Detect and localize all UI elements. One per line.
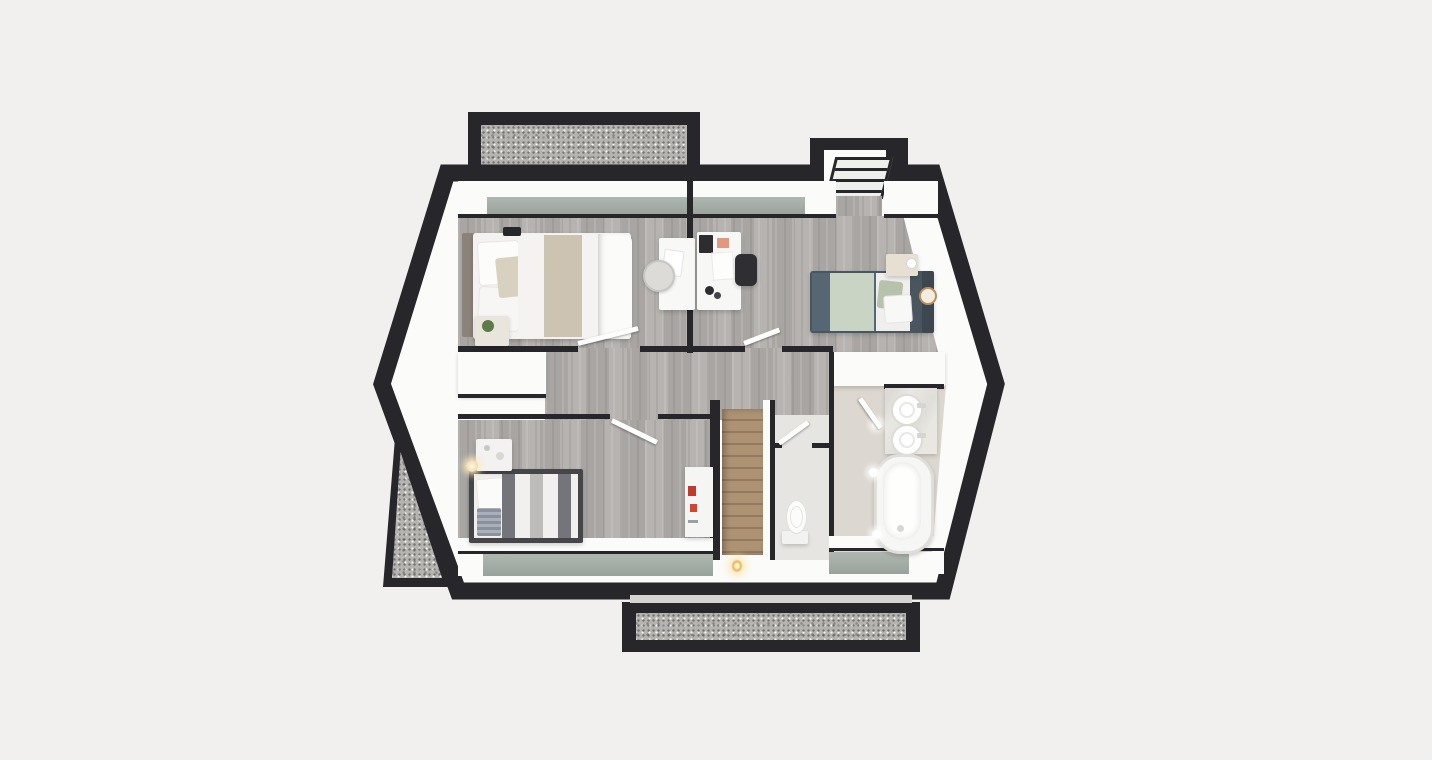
plant: [482, 320, 494, 332]
wall-wc-top-b: [812, 443, 829, 448]
bottom-wall-corner-right: [909, 552, 944, 574]
sink-2-drain: [899, 432, 915, 448]
wall-bedroom3-top-b: [658, 414, 712, 419]
dresser-item-1: [484, 445, 490, 451]
shelf-red-book-2: [690, 504, 697, 512]
mug-2: [714, 292, 721, 299]
bedroom2-top-wall-b: [884, 181, 938, 214]
bed3-dresser: [476, 439, 512, 471]
office-papers: [711, 251, 735, 280]
faucet-1: [917, 403, 926, 408]
top-wall-corner: [458, 197, 487, 215]
bathtub-drain: [897, 525, 904, 532]
bed3-striped-duvet: [502, 474, 578, 538]
bed2-lamp: [906, 258, 917, 269]
sink-1-drain: [899, 402, 915, 418]
mug-1: [705, 286, 714, 295]
spotlight-3: [872, 530, 881, 539]
bed3-wall-lamp: [466, 460, 478, 472]
toilet-seat: [790, 506, 803, 528]
office-chair: [735, 254, 757, 286]
master-wall-lamp: [503, 227, 521, 236]
top-wall-band: [458, 181, 805, 197]
bedroom2-top-line-b: [884, 214, 938, 218]
wall-bathroom-left: [829, 352, 834, 560]
sticky-note: [717, 238, 729, 248]
wall-bedroom3-top-a: [458, 414, 610, 419]
round-chair: [643, 260, 675, 292]
laptop: [699, 235, 713, 253]
bedroom2-top-line-a: [805, 214, 836, 218]
dresser-item-2: [496, 452, 504, 460]
bottom-window-band-left: [483, 554, 713, 576]
top-wall-line: [458, 214, 805, 218]
shelf-red-book-1: [688, 486, 696, 496]
wall-stair-right: [770, 400, 775, 560]
hall-closet: [458, 352, 546, 396]
staircase: [722, 409, 763, 555]
hall-closet-line: [458, 394, 546, 398]
bedroom3-shelf: [685, 467, 713, 537]
wall-hall-top-c: [782, 346, 833, 352]
bedroom2-top-wall-a: [805, 181, 836, 214]
bottom-wall-corner-left: [458, 554, 483, 576]
master-bed-runner: [544, 235, 582, 337]
wall-hall-top-b: [640, 346, 745, 352]
floorplan-canvas[interactable]: [0, 0, 1432, 760]
bed3-pillow-pattern: [477, 508, 501, 536]
master-nightstand: [475, 316, 509, 346]
wall-clock: [919, 287, 937, 305]
bed2-duvet: [830, 273, 874, 331]
faucet-2: [917, 433, 926, 438]
candle-light: [731, 559, 743, 573]
top-window-band: [487, 197, 805, 215]
master-bed-duvet-fold: [598, 234, 632, 338]
bottom-window-band-right: [829, 552, 909, 574]
terrace-back-face: [630, 595, 912, 603]
spotlight-2: [869, 468, 878, 477]
room-hallway: [545, 348, 833, 420]
bed2-pillow-white: [883, 294, 913, 324]
bath-vestibule-wall: [833, 352, 945, 386]
shelf-book-3: [688, 520, 698, 523]
